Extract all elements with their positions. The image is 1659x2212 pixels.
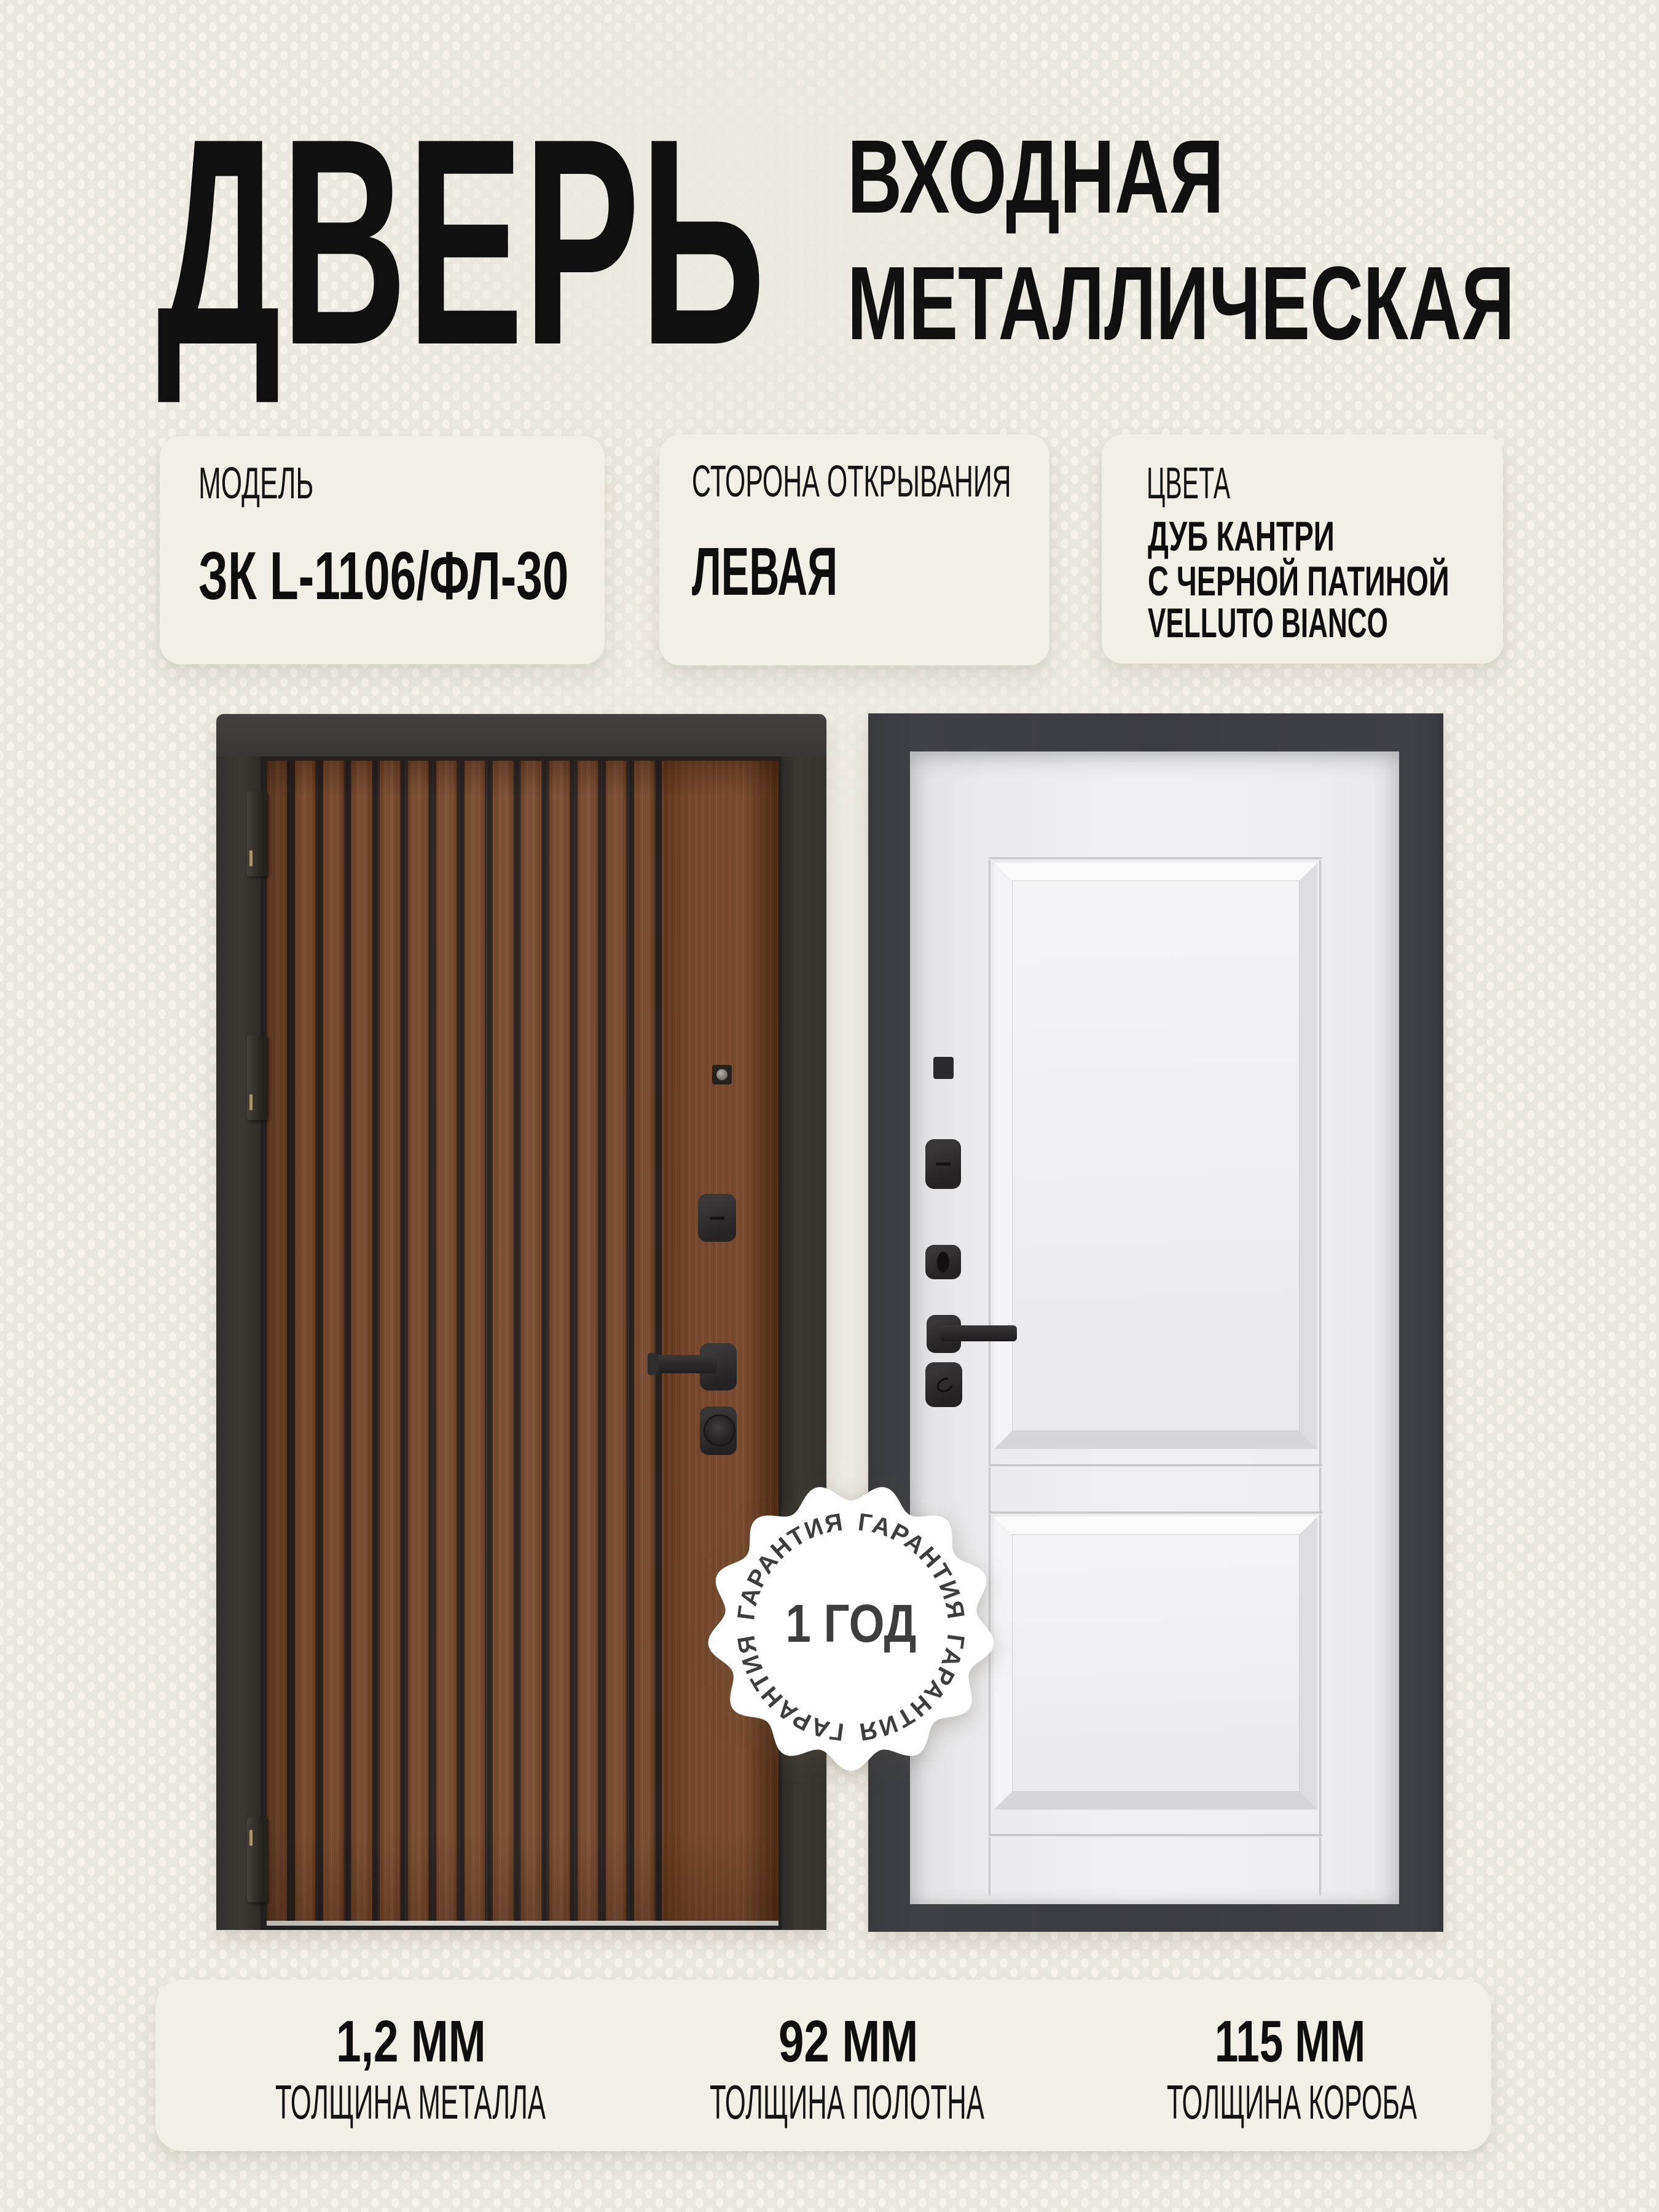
svg-text:1 ГОД: 1 ГОД [786,1594,917,1653]
